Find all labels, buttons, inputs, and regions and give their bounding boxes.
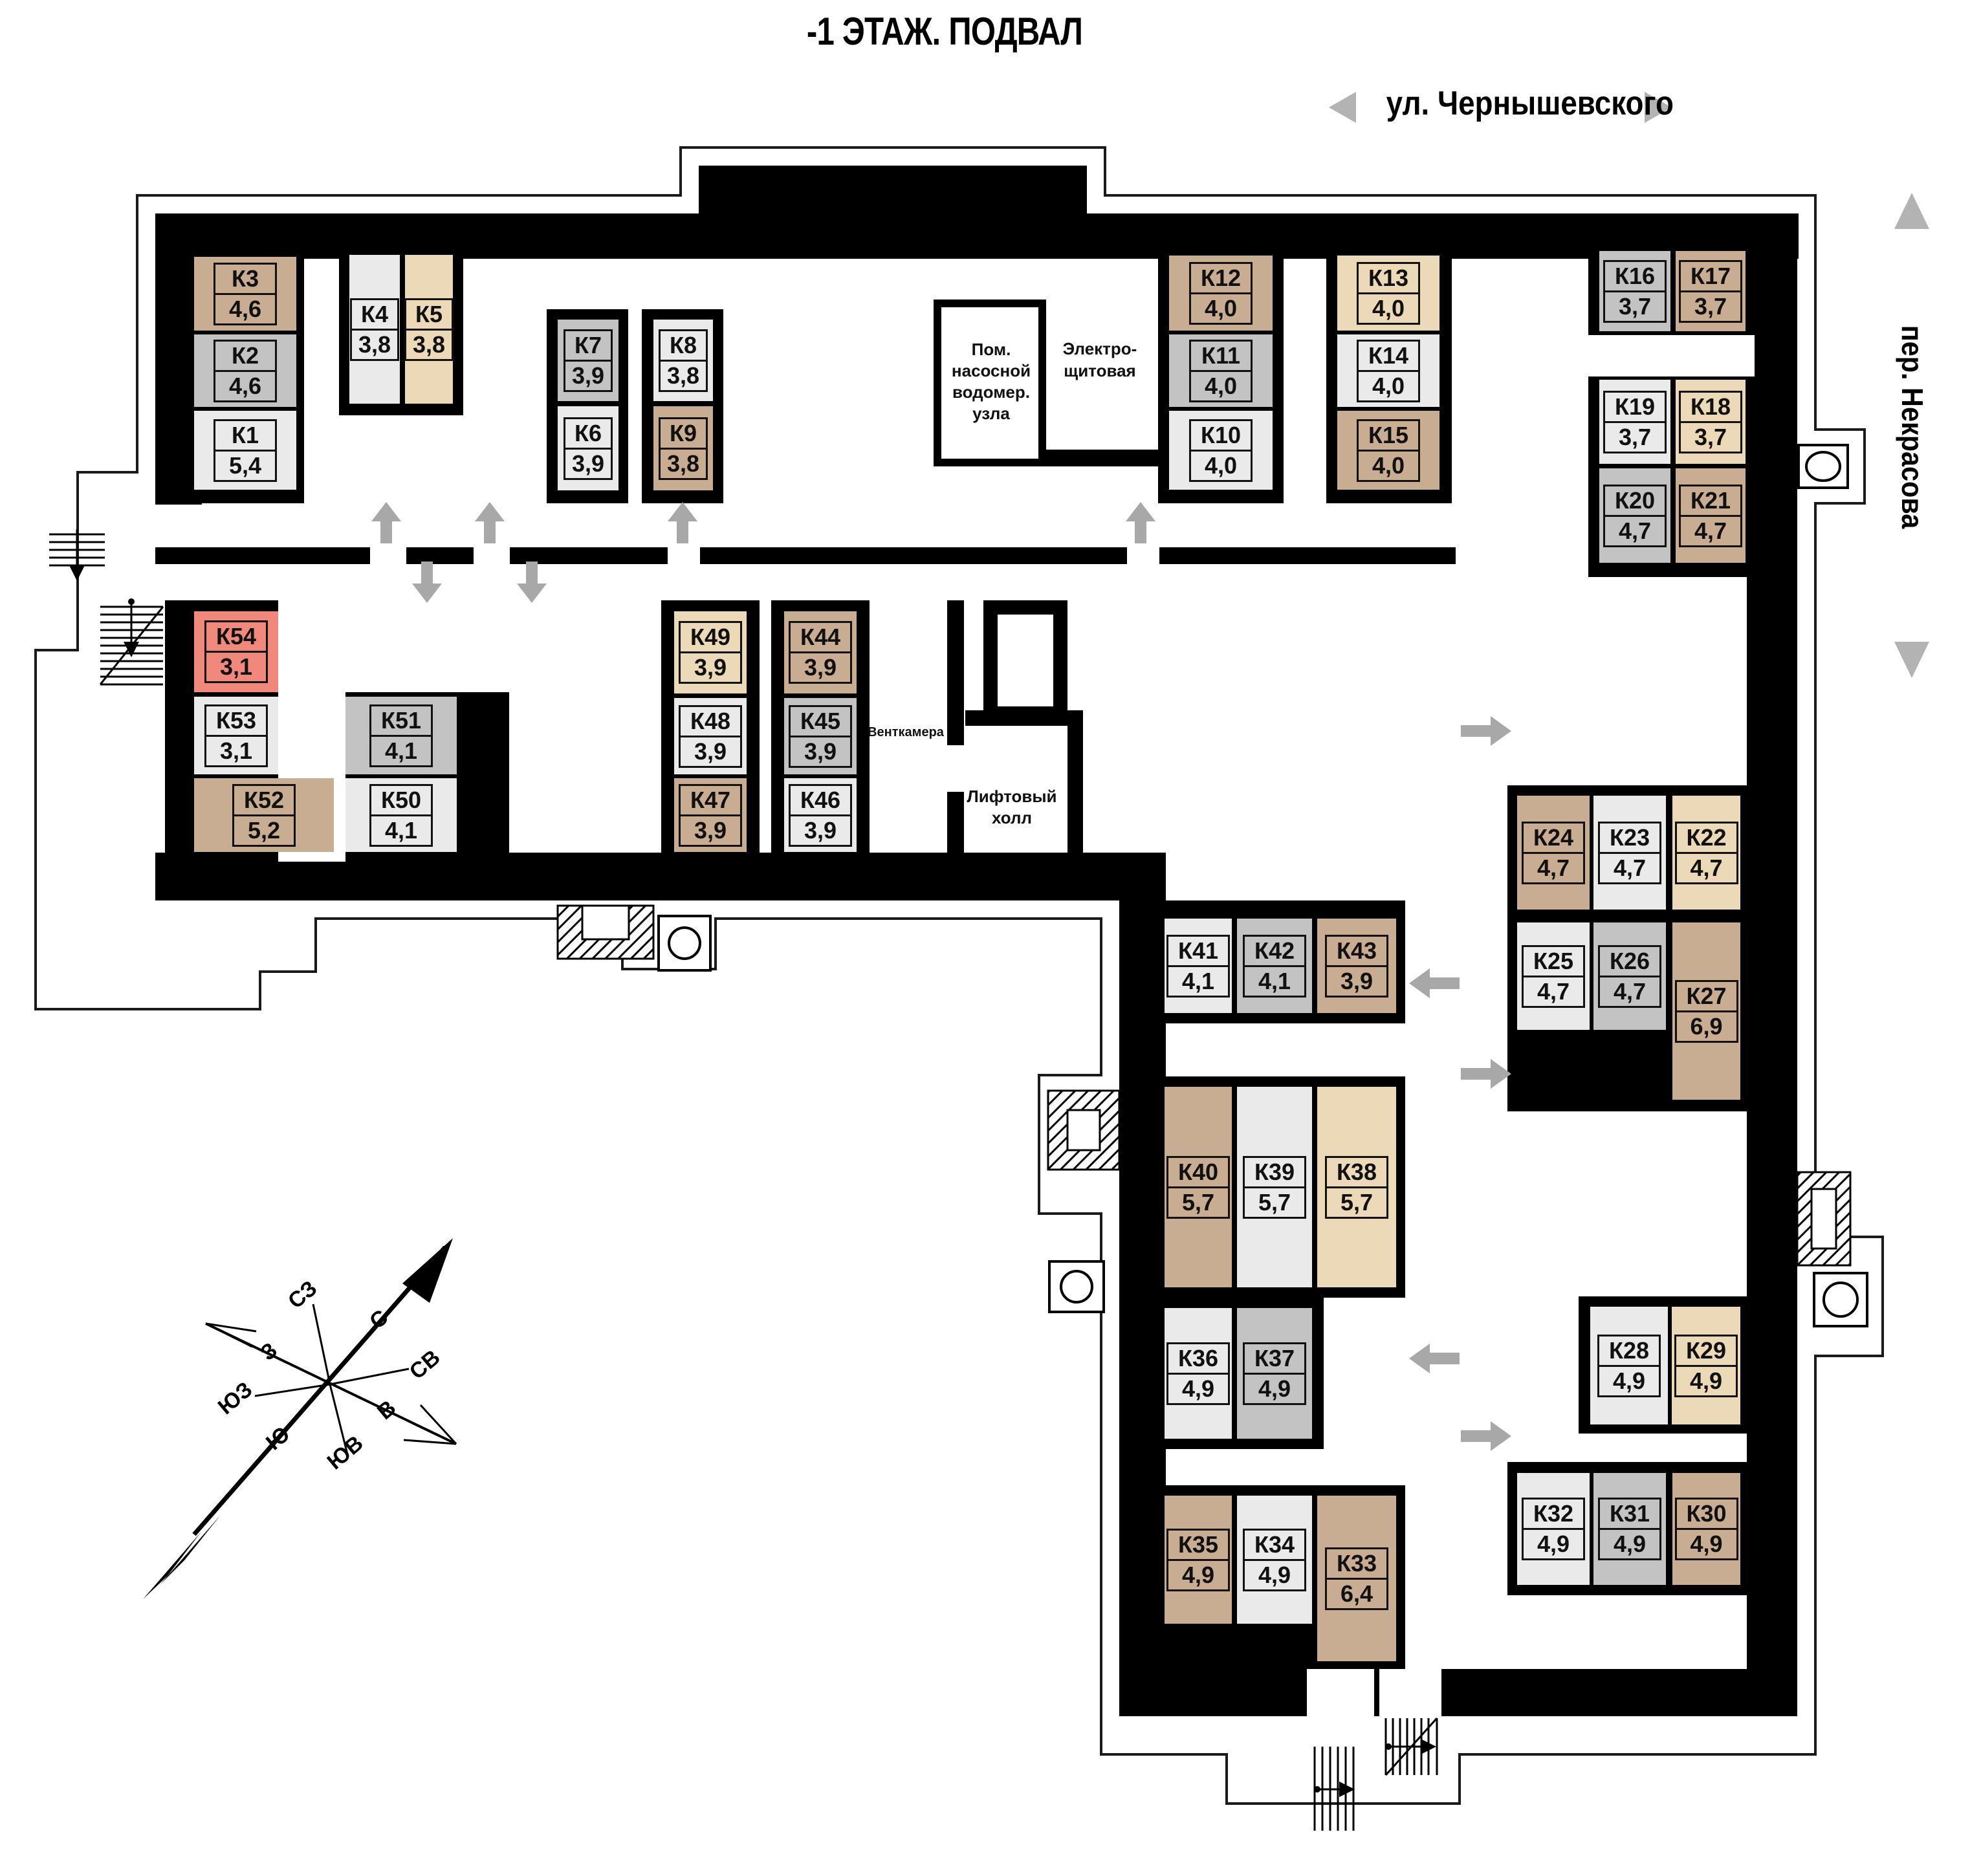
room-area: 5,7 — [1327, 1188, 1386, 1217]
room-area: 3,9 — [565, 362, 611, 390]
room-label: К163,7 — [1603, 260, 1667, 323]
room-area: 4,0 — [1191, 452, 1251, 480]
arrow-up-icon — [1126, 502, 1155, 543]
room-id: К47 — [681, 786, 740, 816]
room-label: К276,9 — [1675, 980, 1738, 1043]
room-К45[interactable]: К453,9 — [784, 698, 857, 774]
room-area: 3,9 — [1327, 967, 1386, 996]
room-area: 4,9 — [1677, 1530, 1736, 1558]
room-vent-chamber-label: Венткамера — [868, 724, 944, 741]
arrow-up-icon — [371, 502, 401, 543]
street-chernyshevskogo: ул. Чернышевского — [1386, 84, 1620, 123]
room-area: 4,0 — [1359, 372, 1418, 400]
room-area: 4,1 — [371, 816, 431, 845]
street-arrow-left-icon — [1329, 92, 1356, 123]
stair-dot — [1314, 1786, 1320, 1793]
room-area: 3,7 — [1605, 292, 1665, 321]
room-К10[interactable]: К104,0 — [1169, 411, 1273, 490]
room-label: К493,9 — [679, 621, 742, 684]
stair-dot — [1385, 1743, 1392, 1750]
stair-arrow-right-icon — [1339, 1782, 1355, 1797]
room-К15[interactable]: К154,0 — [1337, 411, 1439, 490]
room-К46[interactable]: К463,9 — [784, 778, 857, 852]
room-area: 4,0 — [1191, 372, 1251, 400]
room-id: К22 — [1677, 823, 1736, 854]
room-lift-hall-label: Лифтовыйхолл — [967, 786, 1056, 829]
room-id: К30 — [1677, 1500, 1736, 1530]
room-id: К44 — [791, 623, 850, 653]
room-К29[interactable]: К294,9 — [1672, 1307, 1740, 1424]
room-area: 4,7 — [1600, 977, 1659, 1006]
room-id: К34 — [1245, 1531, 1304, 1561]
room-id: К33 — [1327, 1549, 1386, 1580]
room-label: К284,9 — [1597, 1335, 1661, 1397]
room-id: К49 — [681, 623, 740, 653]
room-id: К40 — [1168, 1158, 1228, 1188]
room-id: К32 — [1524, 1500, 1583, 1530]
room-id: К27 — [1677, 982, 1736, 1012]
room-К50[interactable]: К504,1 — [345, 778, 457, 852]
room-id: К7 — [565, 331, 611, 362]
room-К52[interactable]: К525,2 — [194, 778, 334, 852]
room-К35[interactable]: К354,9 — [1165, 1496, 1232, 1624]
room-К42[interactable]: К424,1 — [1237, 919, 1312, 1013]
room-id: К13 — [1359, 264, 1418, 294]
arrow-left-icon — [1409, 968, 1460, 998]
room-К9[interactable]: К93,8 — [653, 406, 713, 490]
room-К37[interactable]: К374,9 — [1237, 1308, 1312, 1439]
room-label: К443,9 — [789, 621, 852, 684]
room-id: К19 — [1605, 393, 1665, 423]
room-К47[interactable]: К473,9 — [674, 778, 747, 852]
room-id: К28 — [1599, 1336, 1659, 1367]
room-id: К38 — [1327, 1158, 1386, 1188]
room-area: 3,8 — [406, 331, 452, 359]
room-id: К11 — [1191, 342, 1251, 372]
room-area: 4,1 — [1168, 967, 1228, 996]
room-label: К224,7 — [1675, 822, 1738, 884]
room-label: К504,1 — [369, 784, 433, 847]
room-area: 5,2 — [234, 816, 294, 845]
street-nekrasova: пер. Некрасова — [1895, 325, 1930, 529]
arrow-down-icon — [517, 562, 547, 603]
room-area: 3,9 — [791, 653, 850, 682]
room-К22[interactable]: К224,7 — [1672, 796, 1740, 910]
room-К34[interactable]: К344,9 — [1237, 1496, 1312, 1624]
room-area: 4,7 — [1524, 854, 1583, 882]
arrow-right-icon — [1461, 1059, 1511, 1089]
room-area: 3,8 — [661, 450, 706, 478]
room-id: К14 — [1359, 342, 1418, 372]
room-id: К39 — [1245, 1158, 1304, 1188]
room-label: К114,0 — [1189, 340, 1253, 402]
room-area: 3,7 — [1681, 292, 1740, 321]
room-area: 4,9 — [1599, 1367, 1659, 1395]
room-label: К533,1 — [204, 704, 268, 767]
room-К31[interactable]: К314,9 — [1593, 1473, 1666, 1585]
room-label: К24,6 — [213, 340, 277, 402]
room-id: К18 — [1681, 393, 1740, 423]
room-label: К304,9 — [1675, 1498, 1738, 1560]
room-id: К15 — [1359, 421, 1418, 452]
room-area: 4,7 — [1524, 977, 1583, 1006]
room-id: К51 — [371, 706, 431, 737]
room-К4[interactable]: К43,8 — [349, 255, 400, 404]
room-К8[interactable]: К83,8 — [653, 320, 713, 401]
room-id: К37 — [1245, 1344, 1304, 1375]
room-label: К336,4 — [1325, 1547, 1388, 1610]
room-К43[interactable]: К433,9 — [1317, 919, 1396, 1013]
room-label: К264,7 — [1598, 945, 1661, 1008]
room-area: 4,7 — [1605, 517, 1665, 545]
room-area: 4,0 — [1359, 294, 1418, 323]
room-label: К134,0 — [1357, 262, 1420, 325]
room-id: К31 — [1600, 1500, 1659, 1530]
room-label: К93,8 — [659, 417, 708, 480]
arrow-down-icon — [412, 562, 442, 603]
room-label: К53,8 — [404, 298, 454, 361]
room-id: К26 — [1600, 947, 1659, 977]
room-id: К16 — [1605, 262, 1665, 292]
room-area: 4,9 — [1168, 1561, 1228, 1589]
room-id: К46 — [791, 786, 850, 816]
room-К18[interactable]: К183,7 — [1676, 380, 1746, 464]
stair-arrow-down-icon — [69, 565, 85, 581]
room-К24[interactable]: К244,7 — [1517, 796, 1590, 910]
room-id: К4 — [352, 300, 397, 331]
room-area: 4,9 — [1524, 1530, 1583, 1558]
room-К51[interactable]: К514,1 — [345, 697, 457, 774]
room-label: К483,9 — [679, 705, 742, 768]
stair-arrow-down-icon — [124, 642, 139, 657]
room-label: К514,1 — [369, 704, 433, 767]
room-area: 6,9 — [1677, 1012, 1736, 1041]
room-id: К23 — [1600, 823, 1659, 854]
room-label: К324,9 — [1522, 1498, 1585, 1560]
room-К3[interactable]: К34,6 — [194, 257, 296, 331]
floor-plan: К34,6К24,6К15,4К43,8К53,8К73,9К63,9К83,8… — [0, 0, 1981, 1876]
room-К28[interactable]: К284,9 — [1590, 1307, 1668, 1424]
room-area: 4,7 — [1677, 854, 1736, 882]
room-id: К29 — [1676, 1336, 1736, 1367]
room-area: 4,1 — [1245, 967, 1304, 996]
room-К48[interactable]: К483,9 — [674, 698, 747, 774]
room-area: 4,9 — [1600, 1530, 1659, 1558]
room-label: К374,9 — [1243, 1342, 1306, 1405]
room-area: 3,9 — [681, 653, 740, 682]
room-id: К25 — [1524, 947, 1583, 977]
arrow-up-icon — [475, 502, 505, 543]
room-К13[interactable]: К134,0 — [1337, 256, 1439, 331]
room-id: К50 — [371, 786, 431, 816]
room-label: К234,7 — [1598, 822, 1661, 884]
room-label: К244,7 — [1522, 822, 1585, 884]
room-area: 3,9 — [791, 737, 850, 766]
room-К12[interactable]: К124,0 — [1169, 256, 1273, 331]
room-area: 4,6 — [215, 372, 275, 400]
room-label: К433,9 — [1325, 935, 1388, 998]
room-label: К193,7 — [1603, 391, 1667, 453]
room-id: К5 — [406, 300, 452, 331]
room-К27[interactable]: К276,9 — [1672, 922, 1740, 1100]
room-К17[interactable]: К173,7 — [1676, 251, 1746, 331]
room-label: К154,0 — [1357, 419, 1420, 482]
room-К38[interactable]: К385,7 — [1317, 1087, 1396, 1287]
room-area: 5,7 — [1245, 1188, 1304, 1217]
room-label: К463,9 — [789, 784, 852, 847]
room-area: 4,9 — [1245, 1375, 1304, 1403]
room-К21[interactable]: К214,7 — [1676, 468, 1746, 563]
room-area: 5,7 — [1168, 1188, 1228, 1217]
room-area: 3,7 — [1605, 423, 1665, 452]
room-К5[interactable]: К53,8 — [405, 255, 453, 404]
room-area: 4,1 — [371, 737, 431, 765]
room-К26[interactable]: К264,7 — [1593, 922, 1666, 1030]
street-right-label: пер. Некрасова — [1896, 325, 1929, 529]
room-К53[interactable]: К533,1 — [194, 697, 278, 774]
room-area: 3,7 — [1681, 423, 1740, 452]
room-id: К6 — [565, 419, 611, 450]
room-label: К405,7 — [1166, 1156, 1230, 1219]
room-label: К144,0 — [1357, 340, 1420, 402]
room-К20[interactable]: К204,7 — [1599, 468, 1670, 563]
room-id: К42 — [1245, 937, 1304, 967]
room-area: 4,9 — [1676, 1367, 1736, 1395]
room-К16[interactable]: К163,7 — [1599, 251, 1670, 331]
room-label: К354,9 — [1166, 1529, 1230, 1591]
room-area: 3,9 — [791, 816, 850, 845]
room-label: К424,1 — [1243, 935, 1306, 998]
room-label: К385,7 — [1325, 1156, 1388, 1219]
room-area: 4,9 — [1168, 1375, 1228, 1403]
room-label: К525,2 — [232, 784, 296, 847]
street-arrow-up-icon — [1894, 193, 1929, 229]
room-label: К364,9 — [1166, 1342, 1230, 1405]
room-area: 4,0 — [1191, 294, 1251, 323]
room-К39[interactable]: К395,7 — [1237, 1087, 1312, 1287]
room-pump-station-label: Пом.насоснойводомер.узла — [952, 339, 1031, 424]
room-id: К8 — [661, 331, 706, 362]
room-id: К17 — [1681, 262, 1740, 292]
room-area: 4,6 — [215, 295, 275, 323]
room-area: 3,1 — [206, 653, 266, 681]
arrow-right-icon — [1461, 716, 1511, 746]
room-label: К124,0 — [1189, 262, 1253, 325]
room-label: К314,9 — [1598, 1498, 1661, 1560]
room-id: К9 — [661, 419, 706, 450]
room-label: К414,1 — [1166, 935, 1230, 998]
street-top-label: ул. Чернышевского — [1386, 85, 1674, 122]
room-К54[interactable]: К543,1 — [194, 611, 278, 692]
room-label: К344,9 — [1243, 1529, 1306, 1591]
room-area: 3,9 — [681, 737, 740, 766]
room-К40[interactable]: К405,7 — [1165, 1087, 1232, 1287]
room-label: К183,7 — [1679, 391, 1742, 453]
room-label: К214,7 — [1679, 485, 1742, 547]
room-id: К54 — [206, 622, 266, 653]
street-arrow-down-icon — [1894, 642, 1929, 678]
room-area: 3,8 — [661, 362, 706, 390]
room-К36[interactable]: К364,9 — [1165, 1308, 1232, 1439]
room-label: К43,8 — [350, 298, 399, 361]
room-area: 5,4 — [215, 452, 275, 480]
room-area: 3,8 — [352, 331, 397, 359]
room-label: К543,1 — [204, 620, 268, 683]
room-id: К1 — [215, 421, 275, 452]
room-id: К24 — [1524, 823, 1583, 854]
arrow-right-icon — [1461, 1421, 1511, 1451]
room-area: 3,9 — [681, 816, 740, 845]
room-К1[interactable]: К15,4 — [194, 411, 296, 490]
room-label: К15,4 — [213, 419, 277, 482]
room-К11[interactable]: К114,0 — [1169, 334, 1273, 407]
room-К33[interactable]: К336,4 — [1317, 1496, 1396, 1661]
room-К7[interactable]: К73,9 — [558, 320, 618, 401]
room-К32[interactable]: К324,9 — [1517, 1473, 1590, 1585]
room-label: К254,7 — [1522, 945, 1585, 1008]
stair-dot — [128, 598, 135, 605]
room-label: К204,7 — [1603, 485, 1667, 547]
room-id: К45 — [791, 707, 850, 737]
room-id: К21 — [1681, 486, 1740, 517]
page-title: -1 ЭТАЖ. ПОДВАЛ — [727, 9, 1162, 54]
room-К25[interactable]: К254,7 — [1517, 922, 1590, 1030]
room-К30[interactable]: К304,9 — [1672, 1473, 1740, 1585]
room-label: К173,7 — [1679, 260, 1742, 323]
room-id: К12 — [1191, 264, 1251, 294]
room-id: К43 — [1327, 937, 1386, 967]
room-К23[interactable]: К234,7 — [1593, 796, 1666, 910]
room-label: К395,7 — [1243, 1156, 1306, 1219]
arrow-up-icon — [668, 502, 697, 543]
room-id: К2 — [215, 342, 275, 372]
room-label: К34,6 — [213, 263, 277, 325]
room-id: К41 — [1168, 937, 1228, 967]
room-К41[interactable]: К414,1 — [1165, 919, 1232, 1013]
room-area: 3,9 — [565, 450, 611, 478]
room-label: К294,9 — [1674, 1335, 1738, 1397]
room-id: К35 — [1168, 1531, 1228, 1561]
room-area: 4,7 — [1600, 854, 1659, 882]
room-area: 6,4 — [1327, 1580, 1386, 1608]
room-К49[interactable]: К493,9 — [674, 611, 747, 693]
room-label: К83,8 — [659, 329, 708, 392]
room-id: К52 — [234, 786, 294, 816]
room-id: К20 — [1605, 486, 1665, 517]
room-area: 4,0 — [1359, 452, 1418, 480]
room-area: 4,9 — [1245, 1561, 1304, 1589]
room-К2[interactable]: К24,6 — [194, 334, 296, 407]
room-id: К10 — [1191, 421, 1251, 452]
room-label: К104,0 — [1189, 419, 1253, 482]
room-label: К63,9 — [564, 417, 613, 480]
room-К19[interactable]: К193,7 — [1599, 380, 1670, 464]
room-id: К53 — [206, 706, 266, 737]
room-label: К73,9 — [564, 329, 613, 392]
room-label: К473,9 — [679, 784, 742, 847]
room-К44[interactable]: К443,9 — [784, 611, 857, 693]
room-electrical-label: Электро-щитовая — [1063, 338, 1137, 382]
arrow-left-icon — [1409, 1344, 1460, 1373]
room-id: К48 — [681, 707, 740, 737]
room-id: К3 — [215, 265, 275, 295]
room-label: К453,9 — [789, 705, 852, 768]
room-area: 3,1 — [206, 737, 266, 765]
room-id: К36 — [1168, 1344, 1228, 1375]
room-К6[interactable]: К63,9 — [558, 406, 618, 490]
room-К14[interactable]: К144,0 — [1337, 334, 1439, 407]
room-area: 4,7 — [1681, 517, 1740, 545]
